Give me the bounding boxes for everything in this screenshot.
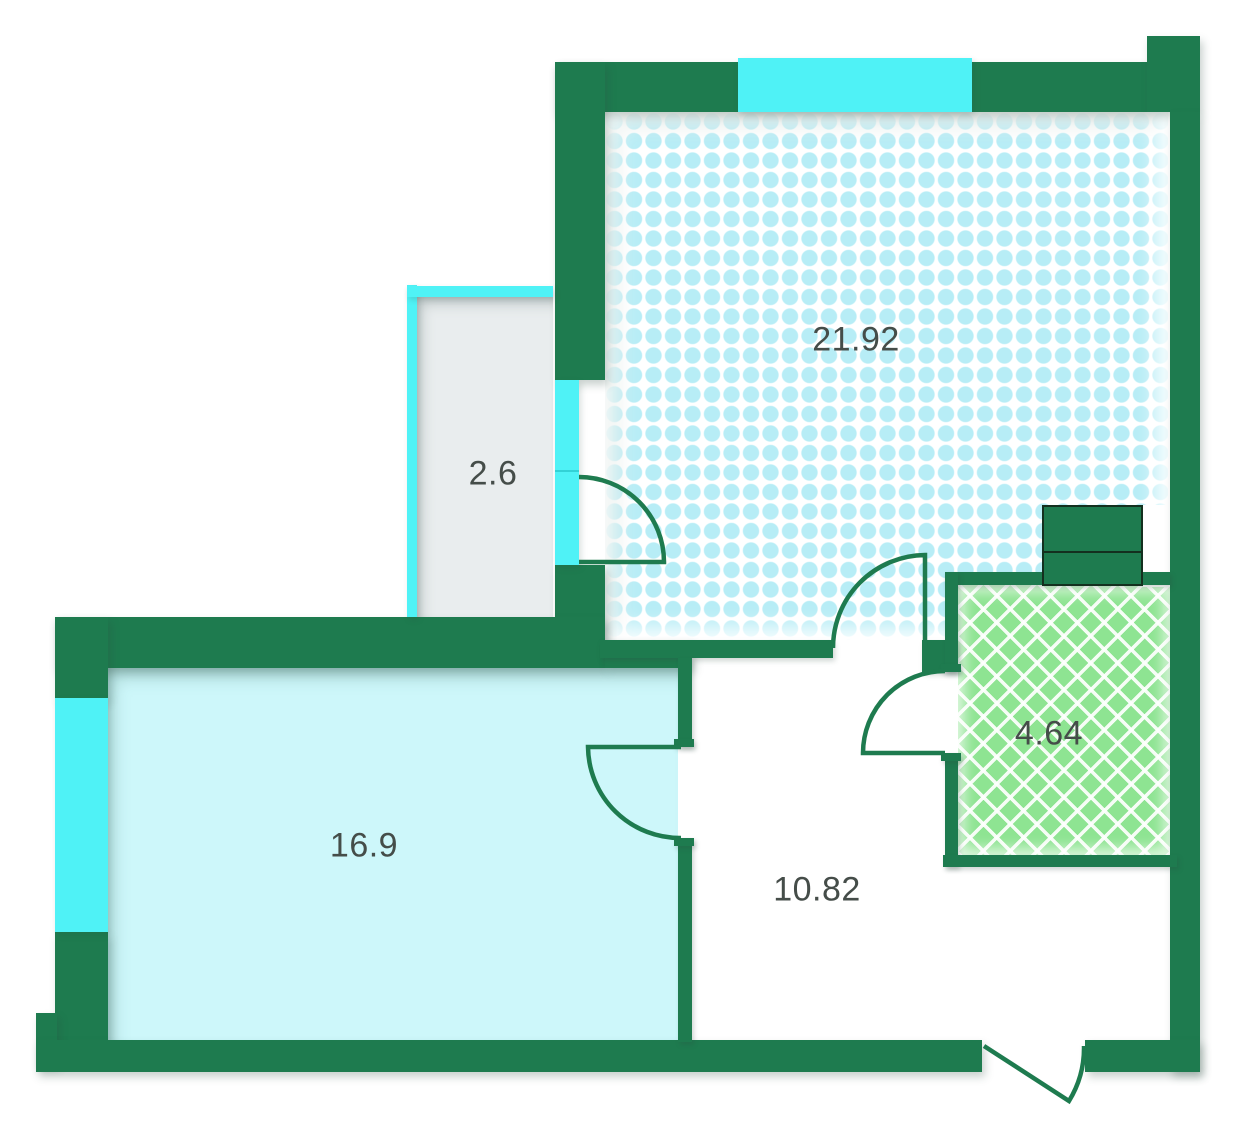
wall-right — [1170, 112, 1200, 1072]
bathroom-door-jamb-bottom — [941, 753, 961, 761]
wall-hall-bedroom-lower — [678, 838, 692, 1042]
wall-bathroom-left-lower — [945, 753, 958, 867]
vent-shaft-upper — [1042, 505, 1143, 553]
window-bedroom-left — [55, 698, 108, 932]
wall-top-right-step — [1147, 36, 1200, 112]
room-hallway-fill — [692, 658, 945, 1040]
wall-living-hall — [600, 640, 833, 658]
window-balcony-door — [555, 380, 579, 565]
wall-bottom-right — [1085, 1040, 1200, 1072]
wall-living-left-upper — [555, 62, 605, 380]
wall-left-lower — [55, 932, 108, 1051]
area-label-hallway: 10.82 — [773, 871, 861, 910]
wall-bathroom-bottom — [943, 855, 1177, 867]
window-balcony-left — [407, 285, 417, 617]
wall-middle-horizontal — [55, 617, 605, 668]
bedroom-door-jamb-top — [674, 739, 694, 747]
vent-shaft-lower — [1042, 551, 1143, 586]
bathroom-door-jamb-top — [941, 664, 961, 672]
wall-bottom-left — [36, 1040, 982, 1072]
balcony-door-frame-line — [555, 470, 579, 472]
floor-plan: 21.92 2.6 16.9 10.82 4.64 — [0, 0, 1254, 1127]
window-balcony-top — [407, 286, 553, 297]
door-entrance — [984, 1046, 1084, 1101]
area-label-bedroom: 16.9 — [330, 827, 398, 866]
area-label-bathroom: 4.64 — [1015, 715, 1083, 754]
window-living-top — [738, 58, 972, 112]
wall-bathroom-left-upper — [945, 572, 958, 672]
area-label-balcony: 2.6 — [469, 455, 518, 494]
bedroom-door-jamb-bottom — [674, 838, 694, 846]
wall-left-upper — [55, 617, 108, 698]
area-label-living: 21.92 — [812, 321, 900, 360]
wall-hall-bedroom-upper — [678, 658, 692, 747]
